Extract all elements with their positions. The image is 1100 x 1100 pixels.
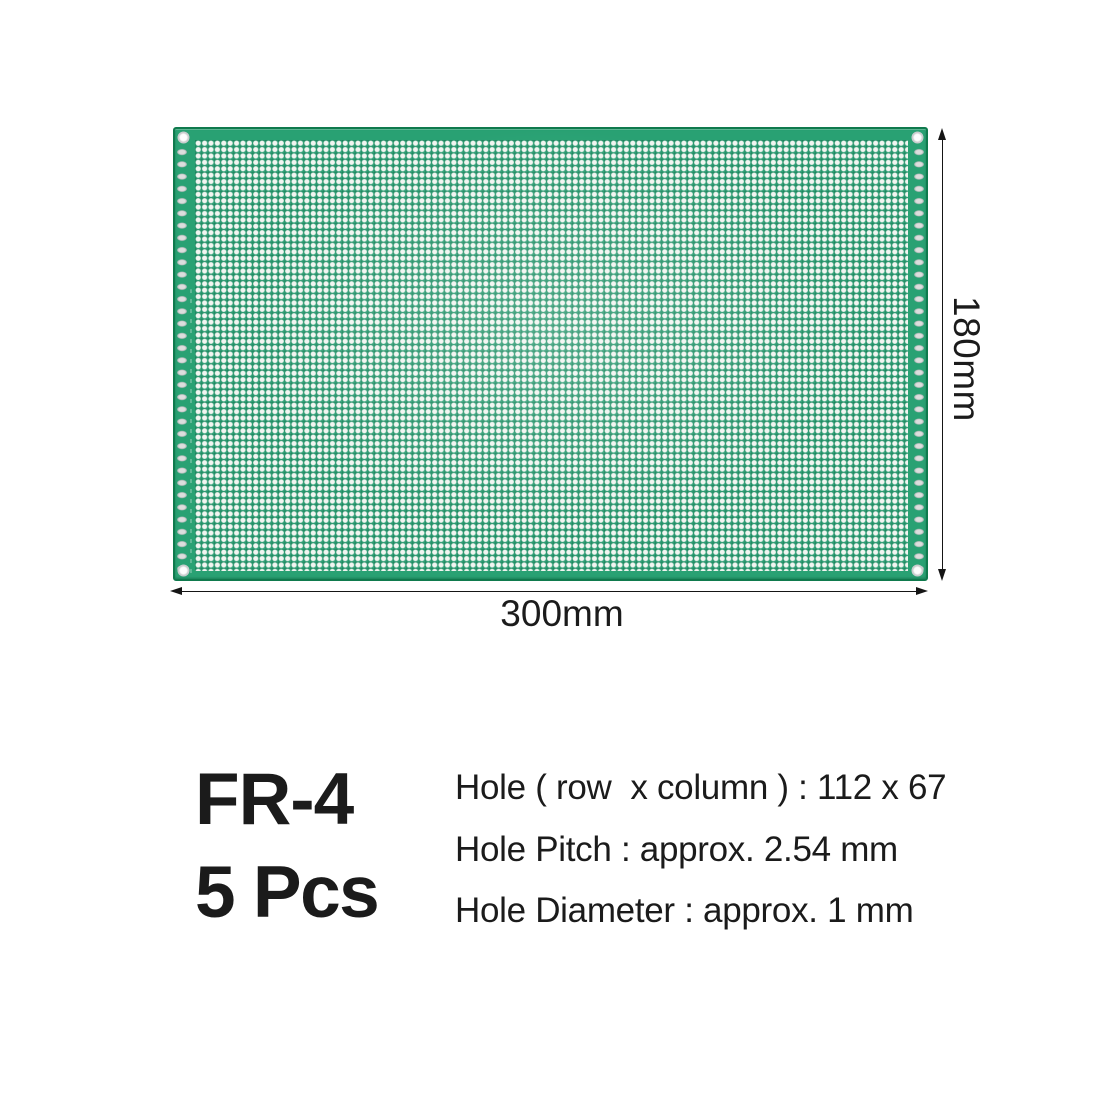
height-label: 180mm	[945, 296, 987, 422]
spec-line-hole-diameter: Hole Diameter : approx. 1 mm	[455, 893, 913, 928]
hole-grid	[195, 140, 908, 571]
product-image: 180mm 300mm FR-4 5 Pcs Hole ( row x colu…	[0, 0, 1100, 1100]
pcb-board	[173, 127, 928, 581]
spec-line-hole-count: Hole ( row x column ) : 112 x 67	[455, 770, 946, 805]
quantity-label: 5 Pcs	[195, 856, 378, 929]
dimension-line-horizontal	[180, 591, 918, 593]
dimension-line-vertical	[942, 138, 944, 571]
width-label: 300mm	[462, 593, 662, 635]
silkscreen-marking	[190, 289, 192, 579]
mounting-hole-top-right	[913, 133, 922, 142]
edge-pads-left	[176, 146, 188, 572]
mounting-hole-top-left	[179, 133, 188, 142]
spec-line-hole-pitch: Hole Pitch : approx. 2.54 mm	[455, 832, 898, 867]
mounting-hole-bottom-left	[179, 566, 188, 575]
edge-pads-right	[913, 146, 925, 572]
arrow-right-icon	[916, 587, 928, 595]
mounting-hole-bottom-right	[913, 566, 922, 575]
arrow-down-icon	[938, 569, 946, 581]
material-label: FR-4	[195, 763, 353, 836]
